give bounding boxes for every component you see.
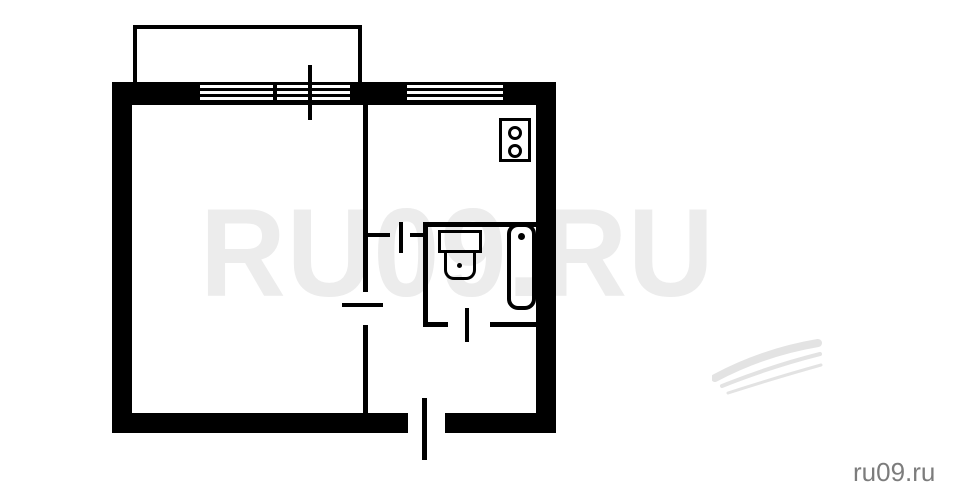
balcony-door-tick xyxy=(308,65,312,120)
wall-bottom-left-segment xyxy=(112,413,408,433)
balcony xyxy=(133,25,362,82)
wall-bottom-right-segment xyxy=(445,413,556,433)
floorplan-canvas: RU09.RU ru09.ru xyxy=(0,0,959,501)
entrance-door-tick xyxy=(422,398,427,460)
bathroom-wall-left xyxy=(423,222,428,327)
stove-burner-bottom xyxy=(508,144,522,158)
bathroom-wall-bottom-right-segment xyxy=(490,322,536,327)
hall-divider-left-segment xyxy=(367,233,390,237)
bathtub-drain-dot xyxy=(518,233,525,240)
living-room-window-pane-right xyxy=(277,85,350,100)
interior-wall-upper xyxy=(363,105,368,292)
interior-wall-lower xyxy=(363,325,368,413)
stove-burner-top xyxy=(508,126,522,140)
bathroom-wall-bottom-left-segment xyxy=(423,322,448,327)
wall-left xyxy=(112,82,132,433)
kitchen-door-tick xyxy=(399,222,403,253)
toilet-tank-icon xyxy=(438,230,482,253)
watermark-corner-text: ru09.ru xyxy=(853,458,935,487)
toilet-drain-dot xyxy=(457,263,462,268)
kitchen-window xyxy=(407,85,503,100)
living-room-door-tick xyxy=(342,303,383,307)
wall-right xyxy=(536,82,556,433)
swoosh-icon xyxy=(712,336,827,396)
living-room-window-pane-left xyxy=(200,85,273,100)
bathroom-door-tick xyxy=(465,308,469,342)
